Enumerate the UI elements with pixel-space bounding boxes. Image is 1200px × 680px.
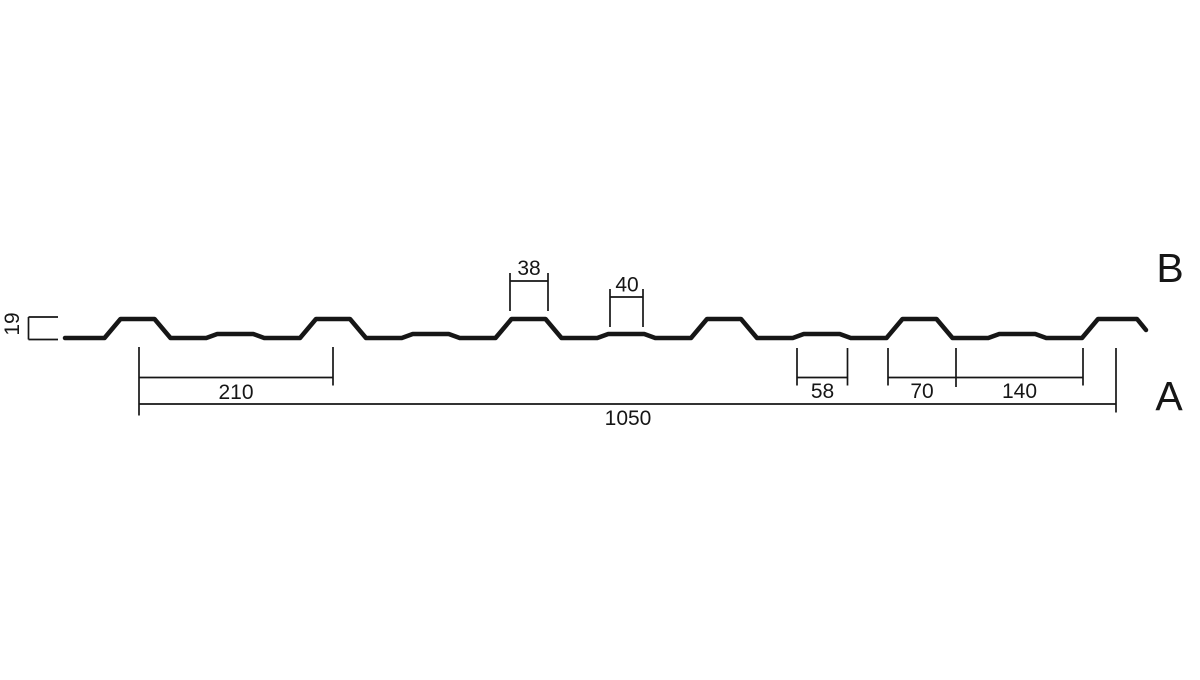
rib-base-dim-label: 70 <box>910 380 933 403</box>
dimension-valley-width: 140 <box>956 348 1083 403</box>
side-label-bottom: A <box>1155 373 1183 419</box>
groove-dim-label: 40 <box>615 274 638 297</box>
dimension-rib-top-width: 38 <box>510 257 548 311</box>
rib-top-dim-label: 38 <box>517 257 540 280</box>
dimension-profile-height: 19 <box>1 312 58 339</box>
drawing-canvas: 19 38 40 210 58 <box>0 0 1200 680</box>
overall-dim-label: 1050 <box>605 407 652 430</box>
pitch-dim-label: 210 <box>218 381 253 404</box>
dimension-overall-width: 1050 <box>139 348 1116 430</box>
side-label-top: B <box>1156 245 1183 291</box>
dimension-rib-base-width: 70 <box>888 348 956 403</box>
sheet-profile-outline <box>65 319 1146 338</box>
height-dim-label: 19 <box>1 312 24 335</box>
dimension-groove-base-width: 58 <box>797 348 848 403</box>
dimension-groove-top-width: 40 <box>610 274 643 328</box>
groove-base-dim-label: 58 <box>811 380 834 403</box>
valley-dim-label: 140 <box>1002 380 1037 403</box>
dimension-rib-pitch: 210 <box>139 347 333 416</box>
profile-drawing: 19 38 40 210 58 <box>0 0 1200 680</box>
